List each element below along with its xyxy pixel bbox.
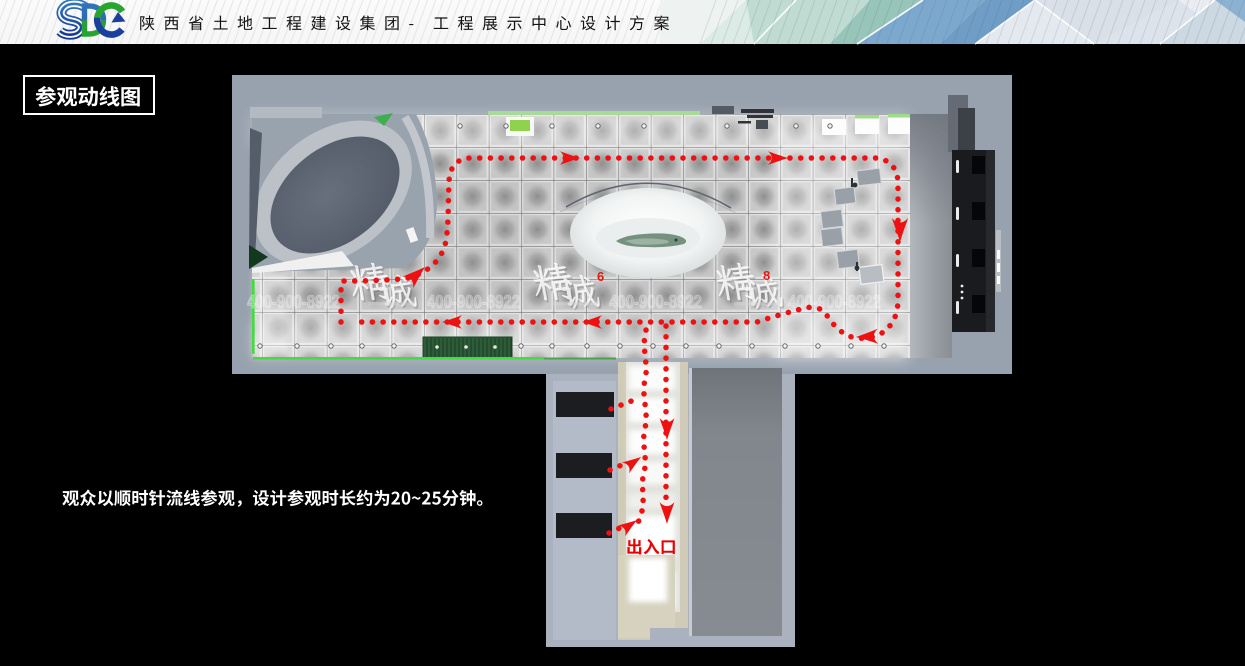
svg-text:400-900-8922: 400-900-8922 — [427, 292, 520, 312]
svg-text:400-900-8922: 400-900-8922 — [609, 292, 702, 312]
svg-text:400-900-8922: 400-900-8922 — [247, 292, 340, 312]
svg-text:6: 6 — [597, 269, 604, 284]
svg-text:8: 8 — [763, 268, 770, 283]
svg-text:400-900-8922: 400-900-8922 — [788, 292, 881, 312]
